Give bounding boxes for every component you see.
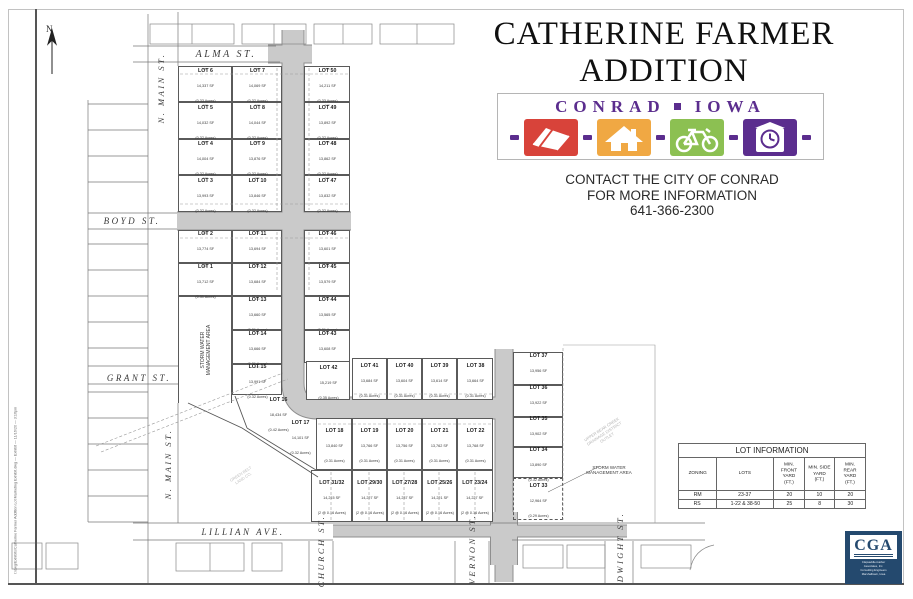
logo-state: IOWA	[695, 97, 766, 117]
street-label: N. MAIN ST.	[147, 28, 175, 148]
lot-table-header: LOTS	[716, 458, 774, 491]
logo-wordmark: CONRAD IOWA	[555, 94, 766, 119]
cga-caption: Clapsaddle-Garber Associates, Inc.Consul…	[858, 561, 889, 576]
street-label: N. MAIN ST.	[154, 404, 182, 524]
logo-dash	[510, 135, 519, 140]
lot-table-row: RM23-37201020	[679, 491, 866, 500]
contact-phone: 641-366-2300	[512, 203, 832, 219]
book-icon	[524, 119, 578, 156]
lot-table-cell: 25	[774, 500, 805, 509]
lot-table-header: MIN. SIDEYARD (FT.)	[805, 458, 835, 491]
lot-table-cell: RM	[679, 491, 717, 500]
lot-table-cell: 20	[835, 491, 866, 500]
contact-block: CONTACT THE CITY OF CONRAD FOR MORE INFO…	[512, 172, 832, 219]
lot-table-cell: 23-37	[716, 491, 774, 500]
page-title-line2: ADDITION	[478, 53, 850, 90]
logo-dash	[729, 135, 738, 140]
clock-tower-icon	[743, 119, 797, 156]
lot-table-header: MIN. REARYARD (FT.)	[835, 458, 866, 491]
conrad-iowa-logo: CONRAD IOWA	[497, 93, 824, 160]
cga-caption-line: Marshalltown, Iowa	[858, 573, 889, 577]
lot-information-table: LOT INFORMATION ZONINGLOTSMIN. FRONTYARD…	[678, 443, 866, 509]
contact-line2: FOR MORE INFORMATION	[512, 188, 832, 204]
lot-table-cell: RS	[679, 500, 717, 509]
house-icon	[597, 119, 651, 156]
logo-city: CONRAD	[555, 97, 666, 117]
street-label: GRANT ST.	[79, 364, 199, 392]
lot-table-cell: 10	[805, 491, 835, 500]
bicycle-icon	[670, 119, 724, 156]
cga-caption-line: Clapsaddle-Garber Associates, Inc.	[858, 561, 889, 569]
lot-table-cell: 30	[835, 500, 866, 509]
page-title-line1: CATHERINE FARMER	[478, 16, 850, 53]
lot-table-cell: 8	[805, 500, 835, 509]
logo-dash	[656, 135, 665, 140]
street-label: ALMA ST.	[166, 40, 286, 68]
cga-logo-box: CGA	[850, 535, 897, 559]
plot-stamp: I:/dwg/Exhibits/Catherine Farmer Additio…	[13, 342, 19, 574]
street-label: DWIGHT ST.	[606, 487, 634, 599]
street-label: BOYD ST.	[72, 207, 192, 235]
lot-table-cell: 1-22 & 38-50	[716, 500, 774, 509]
title-block: CATHERINE FARMER ADDITION	[478, 16, 850, 90]
lot-table-row: RS1-22 & 38-5025830	[679, 500, 866, 509]
lot-table-header: ZONING	[679, 458, 717, 491]
cga-logo-text: CGA	[854, 538, 893, 557]
map-annotation: STORM WATER MANAGEMENT AREA	[192, 290, 220, 410]
plat-sheet: 140LOT 6 14,337 SF (0.33 Acres)140LOT 7 …	[0, 0, 913, 599]
lot-table-cell: 20	[774, 491, 805, 500]
lot-table-header: MIN. FRONTYARD (FT.)	[774, 458, 805, 491]
street-label: LILLIAN AVE.	[183, 518, 303, 546]
contact-line1: CONTACT THE CITY OF CONRAD	[512, 172, 832, 188]
cga-logo: CGA Clapsaddle-Garber Associates, Inc.Co…	[845, 531, 902, 584]
logo-dash	[583, 135, 592, 140]
lot-table-title: LOT INFORMATION	[679, 444, 866, 458]
logo-separator-dot	[674, 103, 681, 110]
logo-tiles	[510, 119, 811, 156]
street-label: CHURCH ST.	[307, 491, 335, 599]
map-annotation: GREEN BELT LAND CO.	[184, 432, 300, 521]
street-label: VERNON ST.	[458, 489, 486, 599]
logo-dash	[802, 135, 811, 140]
